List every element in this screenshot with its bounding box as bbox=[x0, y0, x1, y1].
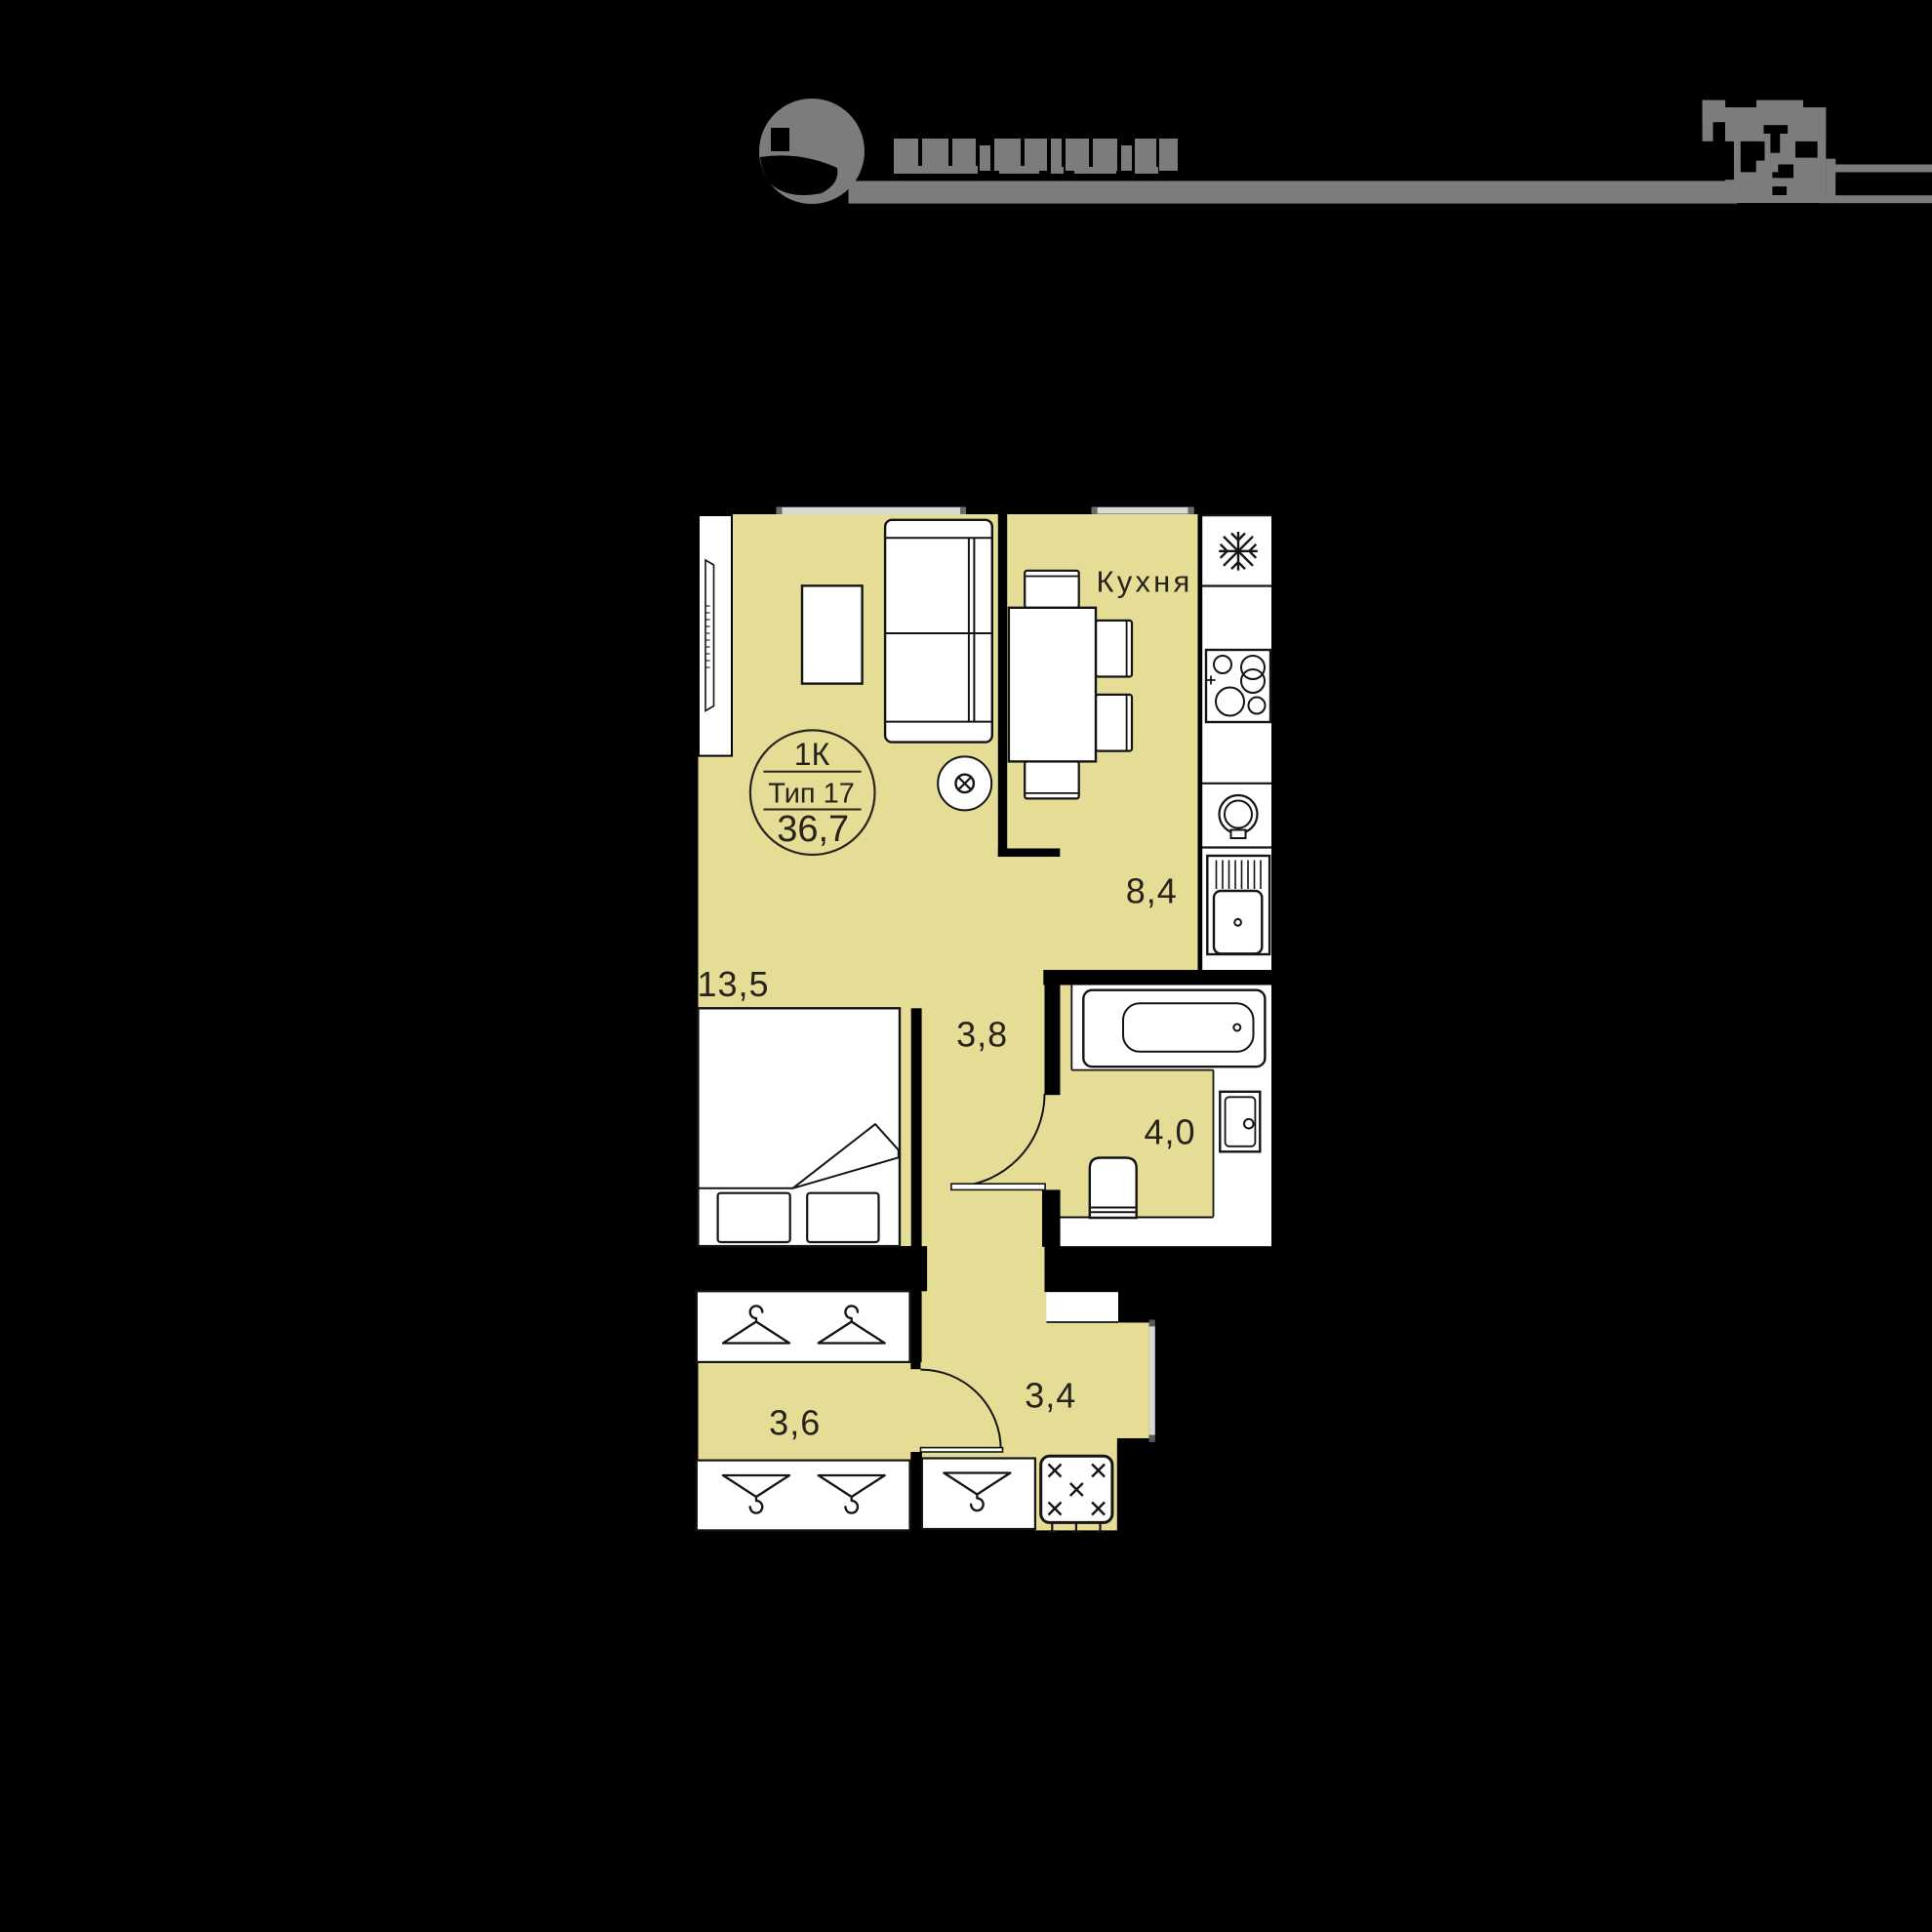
svg-text:1К: 1К bbox=[794, 737, 830, 772]
svg-text:36,7: 36,7 bbox=[777, 809, 849, 850]
svg-text:13,5: 13,5 bbox=[697, 964, 769, 1004]
svg-text:Тип 17: Тип 17 bbox=[768, 778, 855, 809]
svg-text:3,4: 3,4 bbox=[1025, 1375, 1076, 1415]
svg-text:3,6: 3,6 bbox=[769, 1402, 821, 1442]
svg-text:3,8: 3,8 bbox=[956, 1014, 1008, 1054]
svg-text:Кухня: Кухня bbox=[1097, 564, 1193, 598]
svg-text:4,0: 4,0 bbox=[1144, 1112, 1195, 1152]
svg-text:8,4: 8,4 bbox=[1126, 871, 1178, 911]
